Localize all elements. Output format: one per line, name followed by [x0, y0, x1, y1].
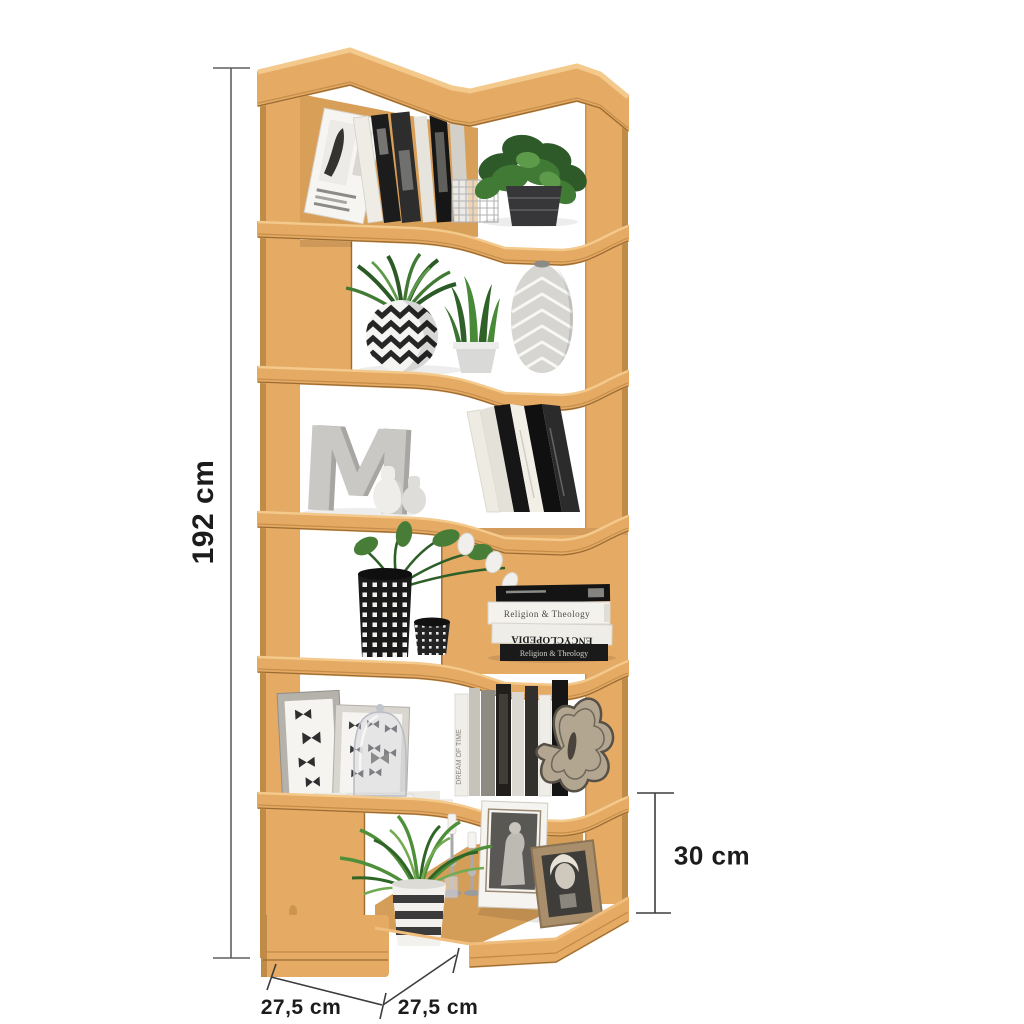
photo-frame-small	[531, 840, 602, 927]
snake-plant	[444, 276, 500, 373]
tier-2-items	[346, 254, 573, 376]
svg-text:ENCYCLOPEDIA: ENCYCLOPEDIA	[510, 633, 592, 645]
section-height-dimension-label: 30 cm	[674, 841, 750, 872]
tier-5-items: DREAM OF TIME	[277, 680, 613, 809]
tier3-leaning-books	[467, 404, 580, 512]
svg-text:DREAM OF TIME: DREAM OF TIME	[456, 729, 463, 785]
product-image: M M	[0, 0, 1024, 1024]
svg-text:Religion & Theology: Religion & Theology	[520, 649, 588, 658]
zigzag-pot-plant	[346, 254, 456, 372]
tier2-left-panel	[300, 240, 352, 383]
small-checkered-pot	[414, 618, 450, 656]
horizontal-book-stack: Religion & Theology ENCYCLOPEDIA Religio…	[488, 584, 616, 663]
depth-left-dimension-label: 27,5 cm	[261, 996, 342, 1020]
depth-right-dimension-label: 27,5 cm	[398, 996, 479, 1020]
corner-shelf-illustration: M M	[0, 0, 1024, 1024]
height-dimension-label: 192 cm	[187, 460, 221, 565]
svg-text:Religion & Theology: Religion & Theology	[504, 609, 590, 619]
section-height-dimension-line	[636, 793, 674, 913]
right-wall-panel	[585, 96, 628, 904]
chevron-vase	[511, 261, 573, 377]
